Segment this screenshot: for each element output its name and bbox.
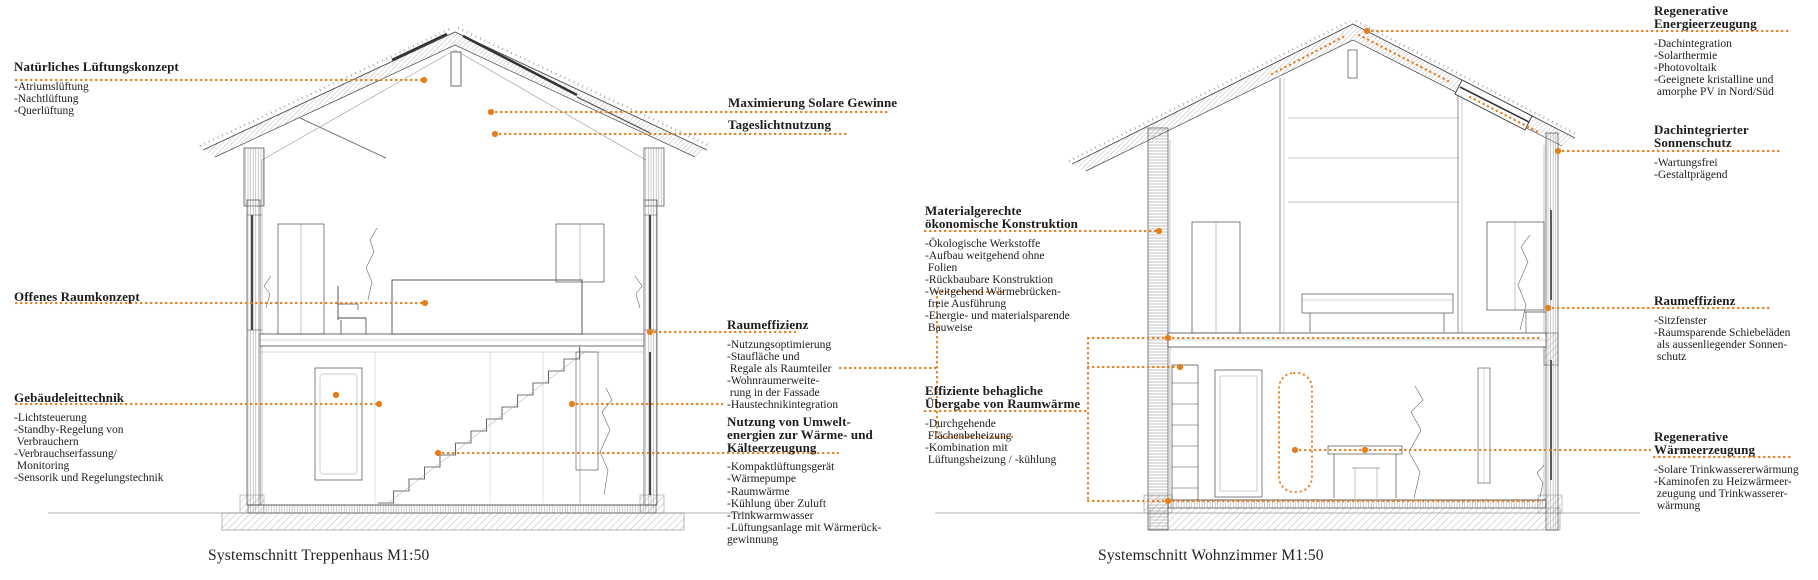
annotation-item: gewinnung bbox=[727, 534, 881, 546]
annotation-title: Regenerative Wärmeerzeugung bbox=[1654, 431, 1799, 457]
annotation-item-list: -Sitzfenster-Raumsparende Schiebeläden a… bbox=[1654, 315, 1790, 363]
annotation-item: Monitoring bbox=[14, 460, 163, 472]
annotation-item: -Verbrauchserfassung/ bbox=[14, 448, 163, 460]
annotation-item: -Kombination mit bbox=[925, 442, 1080, 454]
annotation-open-space: Offenes Raumkonzept bbox=[14, 291, 140, 304]
annotation-title: Tageslichtnutzung bbox=[728, 119, 831, 132]
diagram-linework bbox=[0, 0, 1818, 580]
annotation-item: -Kühlung über Zuluft bbox=[727, 498, 881, 510]
annotation-item: schutz bbox=[1654, 351, 1790, 363]
annotation-item: -Trinkwarmwasser bbox=[727, 510, 881, 522]
annotation-item: Folien bbox=[925, 262, 1078, 274]
annotation-item-list: -Kompaktlüftungsgerät-Wärmepumpe-Raumwär… bbox=[727, 461, 881, 546]
annotation-item: -Solarthermie bbox=[1654, 50, 1774, 62]
annotation-item: zeugung und Trinkwasserer- bbox=[1654, 488, 1799, 500]
annotation-title: Maximierung Solare Gewinne bbox=[728, 97, 897, 110]
annotation-item-list: -Solare Trinkwassererwärmung-Kaminofen z… bbox=[1654, 464, 1799, 512]
annotation-item: -Standby-Regelung von bbox=[14, 424, 163, 436]
annotation-item: -Aufbau weitgehend ohne bbox=[925, 250, 1078, 262]
annotation-item: -Querlüftung bbox=[14, 105, 179, 117]
annotation-title: Offenes Raumkonzept bbox=[14, 291, 140, 304]
annotation-item: -Durchgehende bbox=[925, 418, 1080, 430]
annotation-item: Lüftungsheizung / -kühlung bbox=[925, 454, 1080, 466]
annotation-item: -Haustechnikintegration bbox=[727, 399, 838, 411]
annotation-item: Flächenbeheizung bbox=[925, 430, 1080, 442]
caption-left-section: Systemschnitt Treppenhaus M1:50 bbox=[208, 547, 430, 565]
annotation-item-list: -Lichtsteuerung-Standby-Regelung von Ver… bbox=[14, 412, 163, 485]
annotation-item: -Energie- und materialsparende bbox=[925, 310, 1078, 322]
annotation-item: -Ökologische Werkstoffe bbox=[925, 238, 1078, 250]
annotation-item: -Lichtsteuerung bbox=[14, 412, 163, 424]
annotation-item: -Dachintegration bbox=[1654, 38, 1774, 50]
annotation-item: -Weitgehend Wärmebrücken- bbox=[925, 286, 1078, 298]
annotation-title: Gebäudeleittechnik bbox=[14, 392, 163, 405]
annotation-item: -Raumwärme bbox=[727, 486, 881, 498]
leader-lines bbox=[16, 31, 1790, 501]
annotation-item: Regale als Raumteiler bbox=[727, 363, 838, 375]
annotation-item: -Sensorik und Regelungstechnik bbox=[14, 472, 163, 484]
caption-right-section: Systemschnitt Wohnzimmer M1:50 bbox=[1098, 547, 1324, 565]
annotation-renewable-heat: Regenerative Wärmeerzeugung -Solare Trin… bbox=[1654, 431, 1799, 512]
annotation-material-construction: Materialgerechte ökonomische Konstruktio… bbox=[925, 205, 1078, 334]
annotation-item: -Wärmepumpe bbox=[727, 473, 881, 485]
annotation-item: -Nachtlüftung bbox=[14, 93, 179, 105]
annotation-title: Raumeffizienz bbox=[727, 319, 838, 332]
annotation-space-efficiency-right: Raumeffizienz -Sitzfenster-Raumsparende … bbox=[1654, 295, 1790, 363]
annotation-item: -Sitzfenster bbox=[1654, 315, 1790, 327]
annotation-solar-gains: Maximierung Solare Gewinne bbox=[728, 97, 897, 110]
annotation-item: -Atriumslüftung bbox=[14, 81, 179, 93]
annotation-item-list: -Atriumslüftung-Nachtlüftung-Querlüftung bbox=[14, 81, 179, 117]
annotation-item: -Staufläche und bbox=[727, 351, 838, 363]
annotation-item: Bauweise bbox=[925, 322, 1078, 334]
annotation-natural-ventilation: Natürliches Lüftungskonzept -Atriumslüft… bbox=[14, 61, 179, 117]
annotation-item: amorphe PV in Nord/Süd bbox=[1654, 86, 1774, 98]
annotation-item: -Solare Trinkwassererwärmung bbox=[1654, 464, 1799, 476]
annotation-item: als aussenliegender Sonnen- bbox=[1654, 339, 1790, 351]
annotation-daylight: Tageslichtnutzung bbox=[728, 119, 831, 132]
annotation-item: Verbrauchern bbox=[14, 436, 163, 448]
annotation-item-list: -Wartungsfrei-Gestaltprägend bbox=[1654, 157, 1749, 181]
annotation-item: -Kompaktlüftungsgerät bbox=[727, 461, 881, 473]
annotation-item: freie Ausführung bbox=[925, 298, 1078, 310]
annotation-item-list: -Dachintegration-Solarthermie-Photovolta… bbox=[1654, 38, 1774, 98]
annotation-environmental-energy: Nutzung von Umwelt- energien zur Wärme- … bbox=[727, 416, 881, 546]
annotation-building-control: Gebäudeleittechnik -Lichtsteuerung-Stand… bbox=[14, 392, 163, 484]
annotation-item: -Rückbaubare Konstruktion bbox=[925, 274, 1078, 286]
annotation-item: -Gestaltprägend bbox=[1654, 169, 1749, 181]
annotation-item: rung in der Fassade bbox=[727, 387, 838, 399]
annotation-title: Dachintegrierter Sonnenschutz bbox=[1654, 124, 1749, 150]
annotation-roof-sunshade: Dachintegrierter Sonnenschutz -Wartungsf… bbox=[1654, 124, 1749, 181]
annotation-item: -Lüftungsanlage mit Wärmerück- bbox=[727, 522, 881, 534]
annotation-item: -Photovoltaik bbox=[1654, 62, 1774, 74]
annotation-item-list: -Ökologische Werkstoffe-Aufbau weitgehen… bbox=[925, 238, 1078, 335]
annotation-item: -Wohnraumerweite- bbox=[727, 375, 838, 387]
annotation-title: Natürliches Lüftungskonzept bbox=[14, 61, 179, 74]
annotation-item: -Kaminofen zu Heizwärmeer- bbox=[1654, 476, 1799, 488]
annotation-title: Regenerative Energieerzeugung bbox=[1654, 5, 1774, 31]
annotation-space-efficiency-left: Raumeffizienz -Nutzungsoptimierung-Stauf… bbox=[727, 319, 838, 411]
annotation-item: wärmung bbox=[1654, 500, 1799, 512]
annotation-item-list: -Nutzungsoptimierung-Staufläche und Rega… bbox=[727, 339, 838, 412]
annotation-heat-transfer: Effiziente behagliche Übergabe von Raumw… bbox=[925, 385, 1080, 466]
annotation-title: Effiziente behagliche Übergabe von Raumw… bbox=[925, 385, 1080, 411]
annotation-title: Materialgerechte ökonomische Konstruktio… bbox=[925, 205, 1078, 231]
annotation-item-list: -Durchgehende Flächenbeheizung-Kombinati… bbox=[925, 418, 1080, 466]
architectural-diagram: Natürliches Lüftungskonzept -Atriumslüft… bbox=[0, 0, 1818, 580]
annotation-renewable-power: Regenerative Energieerzeugung -Dachinteg… bbox=[1654, 5, 1774, 98]
annotation-item: -Raumsparende Schiebeläden bbox=[1654, 327, 1790, 339]
annotation-item: -Nutzungsoptimierung bbox=[727, 339, 838, 351]
annotation-title: Nutzung von Umwelt- energien zur Wärme- … bbox=[727, 416, 881, 454]
annotation-item: -Wartungsfrei bbox=[1654, 157, 1749, 169]
annotation-item: -Geeignete kristalline und bbox=[1654, 74, 1774, 86]
annotation-title: Raumeffizienz bbox=[1654, 295, 1790, 308]
